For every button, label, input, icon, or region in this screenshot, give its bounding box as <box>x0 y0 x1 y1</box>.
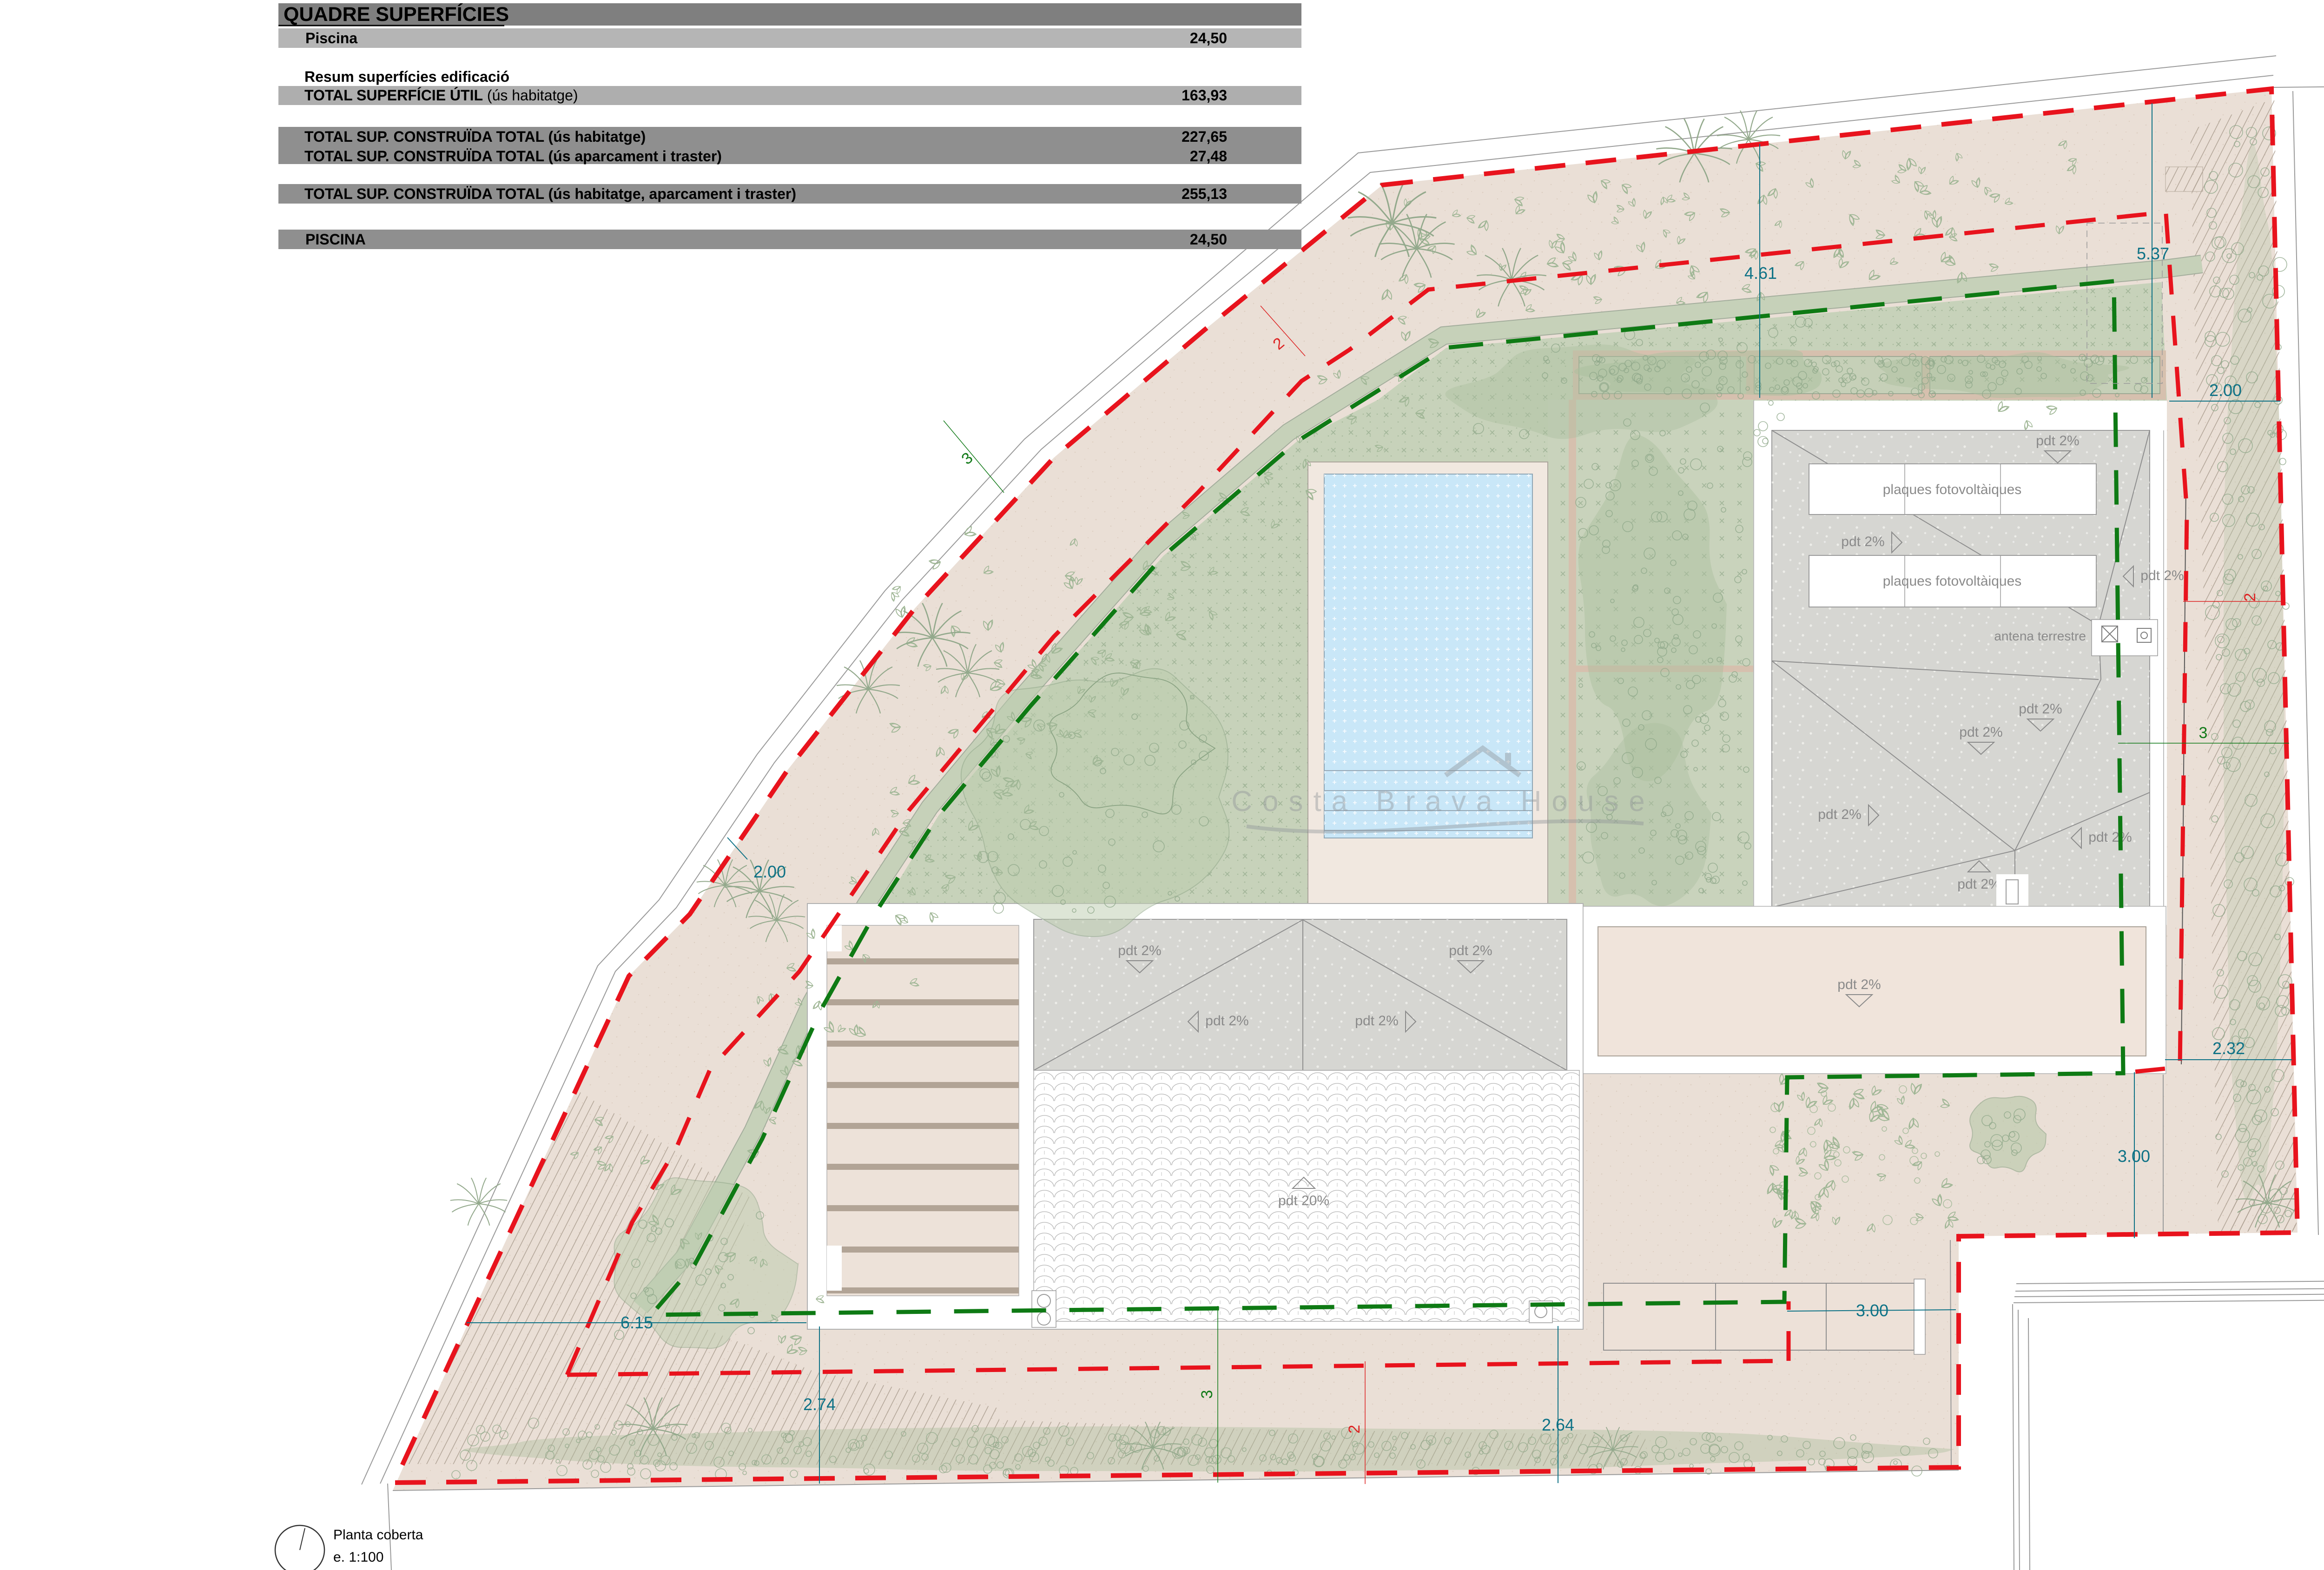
svg-text:3: 3 <box>2199 724 2208 742</box>
svg-text:3: 3 <box>1198 1390 1216 1399</box>
svg-text:2.74: 2.74 <box>803 1395 836 1414</box>
svg-text:e. 1:100: e. 1:100 <box>333 1550 383 1565</box>
svg-text:255,13: 255,13 <box>1182 185 1227 202</box>
svg-text:2.32: 2.32 <box>2212 1039 2245 1058</box>
svg-text:TOTAL SUP. CONSTRUÏDA TOTAL (: TOTAL SUP. CONSTRUÏDA TOTAL (ús habitatg… <box>304 185 796 202</box>
svg-text:4.61: 4.61 <box>1744 264 1777 283</box>
svg-text:pdt 2%: pdt 2% <box>1837 977 1881 992</box>
svg-text:QUADRE SUPERFÍCIES: QUADRE SUPERFÍCIES <box>284 3 509 26</box>
svg-text:antena terrestre: antena terrestre <box>1994 629 2086 643</box>
svg-text:pdt 20%: pdt 20% <box>1278 1193 1329 1208</box>
svg-text:plaques fotovoltàiques: plaques fotovoltàiques <box>1883 482 2022 497</box>
svg-text:pdt 2%: pdt 2% <box>2019 701 2062 717</box>
svg-text:Resum superfícies edificació: Resum superfícies edificació <box>304 68 509 85</box>
svg-text:TOTAL SUPERFÍCIE ÚTIL (ús habi: TOTAL SUPERFÍCIE ÚTIL (ús habitatge) <box>304 87 578 104</box>
svg-text:27,48: 27,48 <box>1190 148 1227 165</box>
svg-text:24,50: 24,50 <box>1190 30 1227 46</box>
svg-text:2: 2 <box>2241 593 2259 602</box>
svg-text:pdt 2%: pdt 2% <box>2088 830 2132 845</box>
svg-text:2.00: 2.00 <box>2209 381 2242 400</box>
svg-text:163,93: 163,93 <box>1182 87 1227 104</box>
svg-text:pdt 2%: pdt 2% <box>2140 568 2184 583</box>
svg-text:3.00: 3.00 <box>2118 1147 2150 1166</box>
svg-text:pdt 2%: pdt 2% <box>1205 1013 1248 1029</box>
svg-text:pdt 2%: pdt 2% <box>1818 807 1861 822</box>
svg-text:2.00: 2.00 <box>753 862 786 881</box>
svg-text:Piscina: Piscina <box>305 30 357 46</box>
svg-text:pdt 2%: pdt 2% <box>1841 534 1884 549</box>
svg-text:pdt 2%: pdt 2% <box>1355 1013 1398 1029</box>
svg-text:pdt 2%: pdt 2% <box>1959 725 2002 740</box>
svg-text:Costa Brava House: Costa Brava House <box>1231 785 1655 818</box>
svg-text:Planta coberta: Planta coberta <box>333 1527 423 1543</box>
svg-text:2.64: 2.64 <box>1542 1415 1574 1434</box>
svg-text:5.37: 5.37 <box>2137 244 2169 263</box>
svg-text:pdt 2%: pdt 2% <box>1449 943 1492 958</box>
svg-text:pdt 2%: pdt 2% <box>1957 877 2000 892</box>
svg-text:plaques fotovoltàiques: plaques fotovoltàiques <box>1883 574 2022 589</box>
svg-text:pdt 2%: pdt 2% <box>2036 433 2079 449</box>
svg-text:PISCINA: PISCINA <box>305 231 366 248</box>
svg-text:227,65: 227,65 <box>1182 128 1227 145</box>
svg-text:24,50: 24,50 <box>1190 231 1227 248</box>
svg-text:pdt 2%: pdt 2% <box>1118 943 1161 958</box>
svg-text:3.00: 3.00 <box>1856 1301 1888 1320</box>
svg-text:TOTAL SUP. CONSTRUÏDA TOTAL (ú: TOTAL SUP. CONSTRUÏDA TOTAL (ús habitatg… <box>304 128 646 145</box>
svg-text:6.15: 6.15 <box>621 1313 653 1332</box>
svg-text:TOTAL SUP. CONSTRUÏDA TOTAL (ú: TOTAL SUP. CONSTRUÏDA TOTAL (ús aparcame… <box>304 148 722 165</box>
svg-text:2: 2 <box>1346 1425 1363 1434</box>
